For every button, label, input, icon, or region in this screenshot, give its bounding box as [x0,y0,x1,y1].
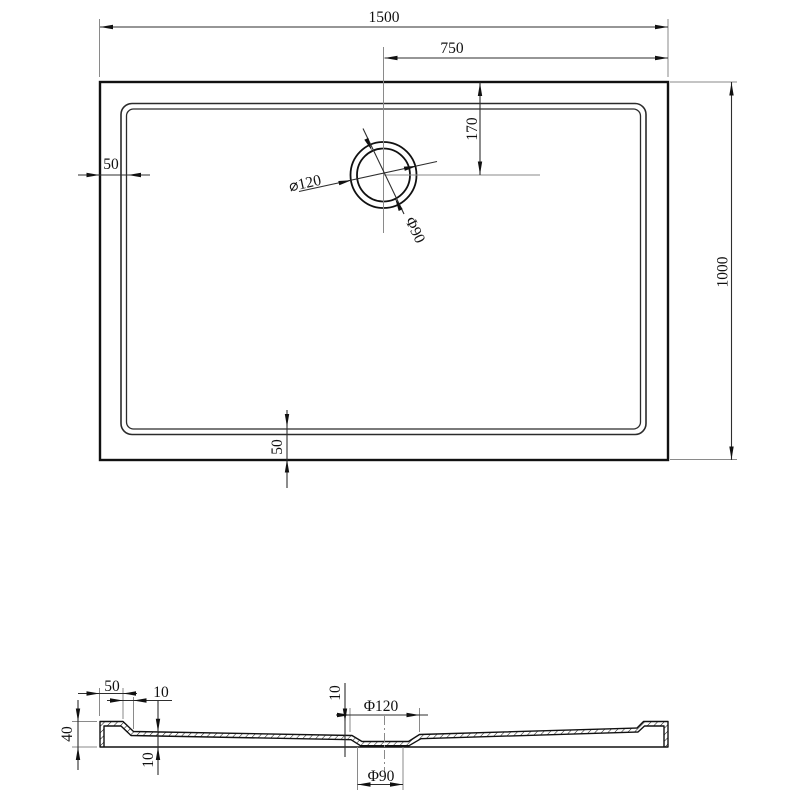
dim-label-1000: 1000 [715,256,732,287]
dim-label-dia90-plan: Φ90 [401,214,428,246]
dim-label-10-bottom: 10 [140,752,157,768]
plan-view: 1500 750 170 1000 [78,9,737,488]
dim-label-1500: 1500 [369,9,400,26]
technical-drawing: 1500 750 170 1000 [0,0,800,800]
dim-label-dia120-section: Φ120 [364,698,399,715]
dim-plan-rim-bottom: 50 [269,410,289,488]
dim-section-drain-hole-dia: Φ90 [358,747,404,790]
dim-label-50-left: 50 [103,156,119,173]
dim-section-recess-depth: 10 [327,683,347,757]
dim-plan-drain-inner-dia: Φ90 [363,129,428,247]
dim-label-50-bottom: 50 [269,439,286,455]
dim-label-750: 750 [440,40,464,57]
dim-label-10-slope: 10 [153,684,169,701]
dim-label-dia120-plan: ⌀120 [287,172,323,196]
dim-plan-rim-left: 50 [78,156,150,177]
dim-plan-drain-from-right: 750 [385,40,669,60]
drawing-canvas: 1500 750 170 1000 [0,0,800,800]
dim-label-dia90-section: Φ90 [368,768,395,785]
section-view: 50 10 40 10 10 [59,678,668,790]
dim-label-40: 40 [59,726,76,742]
dim-plan-overall-depth: 1000 [670,82,737,460]
dim-section-edge-height: 40 [59,700,97,770]
dim-section-rim-width: 50 [78,678,137,719]
dim-label-170: 170 [464,117,481,141]
dim-section-recess-dia: Φ120 [336,698,428,732]
dim-label-10-recess: 10 [327,685,344,701]
dim-section-bottom-thickness: 10 [140,701,160,776]
dim-plan-drain-from-top: 170 [464,83,482,176]
dim-label-50-section: 50 [104,678,120,695]
